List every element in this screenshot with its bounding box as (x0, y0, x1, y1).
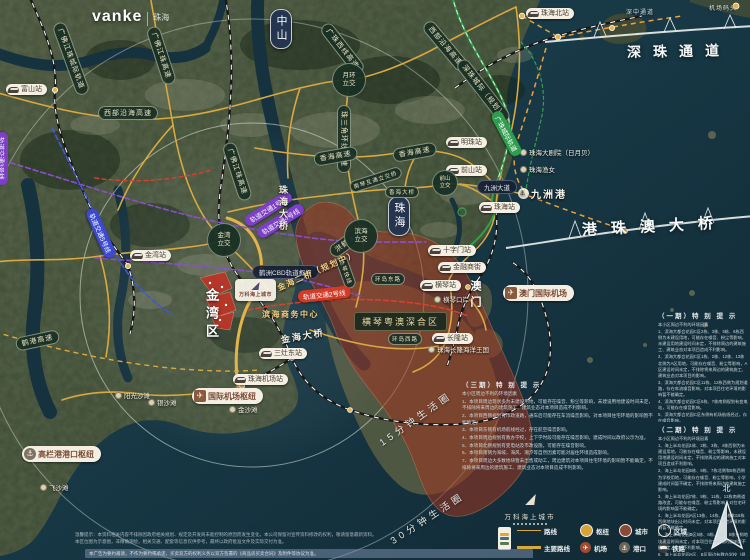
poi-yinshatan-beach: 银沙滩 (148, 397, 177, 407)
road-xianghai-expwy-2-text: 香海高速 (398, 144, 431, 159)
legend-route-label: 路线 (544, 526, 557, 536)
road-west-coastal-expwy-2-text: 西部沿海高速 (104, 108, 152, 118)
poi-jinshatan-beach: 金沙滩 (229, 404, 258, 414)
poi-binhai-business-center-text: 滨海商务中心 (262, 309, 319, 320)
notice-phase-3-line-3: 3、本项目东侧有机场航线经过，存在航空噪音影响。 (462, 427, 654, 434)
notice-phase-2-header: （二期）特 别 提 示 (658, 424, 748, 434)
brand-logo: vanke 珠海 (92, 8, 169, 26)
road-xianghai-expwy-1: 香海高速 (313, 145, 359, 166)
brand-region-label: 珠海 (147, 12, 169, 26)
vanke-wordmark: vanke (92, 8, 142, 26)
station-hengqin: 横琴站 (420, 280, 461, 291)
poi-chimelong-ocean-kingdom: 珠海长隆海洋王国 (428, 344, 489, 354)
poi-zhuhai-grand-theatre-text: 珠海大剧院（日月贝） (529, 147, 594, 157)
road-west-coastal-expwy-2: 西部沿海高速 (98, 106, 158, 120)
notice-phase-2: （二期）特 别 提 示本小区周边不利的环境因素1、海上半岛花园1栋、2栋、3栋、… (658, 424, 748, 556)
station-jinwan-text: 金湾站 (145, 251, 166, 260)
plane-icon (505, 287, 517, 299)
notice-phase-3-line-7: 7、本项目周边大多数地块暂未出售或动工，周边建筑对本项目住宅环境的影响暂不能确定… (462, 458, 654, 471)
dot-icon (229, 406, 236, 413)
bridge-zhuhai-text: 珠海大桥 (277, 185, 290, 233)
zone-hengqin-cooperation: 横琴粤澳深合区 (354, 312, 447, 331)
project-marker-legend-icon (498, 527, 511, 550)
road-gfjz-expressway-2-text: 广佛江珠高速 (225, 147, 249, 196)
airplane-icon (580, 542, 591, 553)
notice-phase-3-line-4: 4、本项目周边规划有教办学校，上下学时段可能存在噪音影响，建成时间以政府公示为准… (462, 435, 654, 442)
train-icon (447, 140, 460, 146)
notice-phase-1-line-1: 1、滨海大都会花园C区2栋、3栋、5栋、6栋西侧为未建设用地，可能存在噪音、粉尘… (658, 329, 748, 353)
station-hengqin-text: 横琴站 (435, 281, 456, 290)
station-zhuhai-text: 珠海站 (494, 203, 515, 212)
sea-title-hzmb: 港珠澳大桥 (581, 211, 727, 240)
notice-phase-3-line-2: 2、本项目西侧规划有市政道路，通车后可能存在车流噪音影响，对本项目住宅环境的影响… (462, 413, 654, 426)
poi-gaolan-port-hub-text: 高栏港港口枢纽 (38, 449, 94, 460)
poi-gaolan-port-hub: 高栏港港口枢纽 (22, 446, 101, 462)
dot-icon (428, 346, 435, 353)
legend-city-label: 城市 (635, 526, 648, 536)
label-airport-pier: 机场码头 (709, 3, 737, 12)
road-gfjz-intercity-rail-text: 广佛江珠城际轨道 (55, 27, 86, 91)
anchor-icon (24, 448, 36, 460)
poi-jinshatan-beach-text: 金沙滩 (238, 404, 258, 414)
sail-icon (251, 282, 259, 290)
interchange-jinwan: 金湾立交 (207, 223, 241, 257)
notice-phase-3-line-1: 1、本项目周边现状多为未建设用地，可能存在噪音、粉尘等影响，未建设用地建设时间未… (462, 399, 654, 412)
legend-route: 路线 (517, 526, 570, 536)
notice-phase-1-line-0: 本小区周边不利的环境因素 (658, 322, 748, 328)
station-mingzhu-text: 明珠站 (461, 138, 482, 147)
hub-circle-icon (580, 524, 593, 537)
station-jinrong-shangjie: 金融商街 (438, 262, 486, 273)
poi-jiuzhou-port: 九洲港 (518, 186, 567, 201)
notice-phase-2-line-4: 4、海上半岛花园A区13栋、14栋、15栋和16栋西侧地块出让时间未定，对本项目… (658, 513, 748, 531)
interchange-yuehuan-text: 月环立交 (342, 72, 357, 88)
road-hegang-expwy: 鹤港高速 (15, 329, 61, 352)
station-mingzhu: 明珠站 (446, 137, 487, 148)
notice-phase-2-line-3: 3、海上半岛花园7栋、8栋、11栋、12栋南侧道路改造，可能存在噪音、粉尘等影响… (658, 494, 748, 512)
notice-phase-1-line-3: 3、滨海大都会花园C区11栋、12栋西侧为规划道路，存在车流噪音影响，对本项目住… (658, 380, 748, 398)
notice-phase-1-line-5: 5、滨海大都会花园C区东侧有机场航线经过，存在噪音影响。 (658, 412, 748, 422)
station-jinwan: 金湾站 (130, 250, 171, 261)
poi-macau-intl-airport: 澳门国际机场 (503, 285, 574, 301)
station-zhuhai: 珠海站 (479, 202, 520, 213)
poi-intl-airport-hub-text: 国际机场枢纽 (208, 391, 256, 402)
rail-guangzhu-intercity-text: 广珠城际轨道 (493, 114, 520, 153)
interchange-qianshan: 前山立交 (432, 170, 458, 196)
road-jiuzhou-avenue: 九洲大道 (477, 180, 517, 194)
interchange-jinwan-text: 金湾立交 (217, 232, 232, 248)
road-xianghai-bridge: 香海大桥 (385, 186, 419, 198)
train-icon (421, 283, 434, 289)
poi-yinshatan-beach-text: 银沙滩 (157, 397, 177, 407)
metro-line-3: 轨道交通3号线 (0, 132, 8, 185)
footer-disclaimer-line1: 温馨提示：本资料相关内容不排除因政府相关规划、规定及开发商未能控制的原因而发生变… (75, 532, 461, 539)
poi-hengqin-checkpoint: 横琴口岸 (434, 294, 469, 304)
station-sanzao-east-text: 三灶东站 (274, 349, 302, 358)
notice-phase-2-line-6: 6、海上半岛花园A区、B区周边有教办学校（规划中）。 (658, 552, 748, 556)
notice-phase-3-line-6: 6、本项目南侧为海域，海风、潮汐等自然因素可能对居住环境造成影响。 (462, 450, 654, 457)
dot-icon (434, 296, 441, 303)
poi-hengqin-checkpoint-text: 横琴口岸 (443, 294, 469, 304)
station-fushan: 富山站 (6, 84, 47, 95)
station-sanzao-east: 三灶东站 (259, 348, 307, 359)
city-zhongshan-text: 中山 (273, 15, 289, 43)
city-zhuhai: 珠海 (388, 196, 410, 236)
sea-title-shenzhu-corridor-text: 深珠通道 (627, 40, 731, 62)
arc-15min-circle-text: 15分钟生活圈 (376, 388, 455, 449)
notice-phase-2-line-1: 1、海上半岛花园1栋、2栋、3栋、4栋西侧为未建设用地，可能存在噪音、粉尘等影响… (658, 443, 748, 467)
train-icon (7, 87, 20, 93)
bridge-zhuhai: 珠海大桥 (277, 185, 290, 233)
footer-strip: 本广告为要约邀请，不作为要约或承诺，买卖双方的权利义务以双方签署的《商品房买卖合… (85, 549, 533, 558)
project-marker-vanke-sea-city: 万科海上城市 (235, 279, 276, 301)
station-shizimen-text: 十字门站 (443, 246, 471, 255)
station-zhuhai-airport: 珠海机场站 (233, 374, 288, 385)
poi-yangguang-beach-text: 阳光沙滩 (124, 390, 150, 400)
label-airport-pier-text: 机场码头 (709, 3, 737, 12)
poi-jiuzhou-port-text: 九洲港 (531, 186, 567, 201)
notice-phase-2-line-0: 本小区周边不利的环境因素 (658, 436, 748, 442)
footer-disclaimer: 温馨提示：本资料相关内容不排除因政府相关规划、规定及开发商未能控制的原因而发生变… (75, 532, 461, 546)
poi-feishatan-beach: 飞沙滩 (40, 482, 69, 492)
notice-phase-3-line-0: 本小区周边不利的环境因素 (462, 391, 654, 398)
dot-icon (520, 166, 527, 173)
road-huandao-west: 环岛西路 (388, 333, 422, 345)
notice-phase-1: （一期）特 别 提 示本小区周边不利的环境因素1、滨海大都会花园C区2栋、3栋、… (658, 310, 748, 422)
sea-title-shenzhu-corridor: 深珠通道 (627, 40, 731, 62)
interchange-binhai-text: 滨海立交 (354, 228, 369, 244)
notice-phase-1-line-2: 2、滨海大都会花园C区1栋、2栋、12栋、13栋北侧为A区用地，可能存在噪音、粉… (658, 354, 748, 378)
train-icon (131, 253, 144, 259)
legend-main-route-label: 主要路线 (544, 543, 570, 553)
route-line-icon (517, 530, 541, 532)
dot-icon (115, 392, 122, 399)
train-icon (480, 205, 493, 211)
zone-hengqin-cooperation-text: 横琴粤澳深合区 (362, 315, 439, 328)
poi-zhuhai-grand-theatre: 珠海大剧院（日月贝） (520, 147, 594, 157)
road-gfjz-expressway: 广佛江珠高速 (145, 25, 177, 86)
poi-zhuhai-fisher-girl: 珠海渔女 (520, 164, 555, 174)
sea-title-hzmb-text: 港珠澳大桥 (581, 211, 727, 240)
notice-phase-3-line-5: 5、本项目北侧规划有变电站及市政设施，可能存在噪音影响。 (462, 443, 654, 450)
anchor-c-icon (518, 188, 529, 199)
station-zhuhai-airport-text: 珠海机场站 (248, 375, 283, 384)
footer-disclaimer-line2: 本区位图为示意图，非精确测绘，相关交通、配套等信息仅供参考，最终以政府批准文件及… (75, 539, 461, 546)
legend-hub-label: 枢纽 (596, 526, 609, 536)
legend-hub: 枢纽 (580, 524, 609, 537)
legend-city: 城市 (619, 524, 648, 537)
anchor-icon (619, 542, 630, 553)
district-jinwan: 金湾区 (202, 288, 221, 342)
poi-feishatan-beach-text: 飞沙滩 (49, 482, 69, 492)
train-icon (439, 265, 452, 271)
interchange-binhai: 滨海立交 (344, 219, 378, 253)
poi-zhuhai-fisher-girl-text: 珠海渔女 (529, 164, 555, 174)
poi-chimelong-ocean-kingdom-text: 珠海长隆海洋王国 (437, 344, 489, 354)
city-zhongshan: 中山 (270, 9, 292, 49)
poi-binhai-business-center: 滨海商务中心 (262, 309, 319, 320)
interchange-yuehuan: 月环立交 (332, 63, 366, 97)
road-gfjz-expressway-2: 广佛江珠高速 (221, 141, 253, 202)
notice-phase-3-header: （三期）特 别 提 示 (462, 379, 654, 389)
station-changlong: 长隆站 (432, 333, 473, 344)
station-changlong-text: 长隆站 (447, 334, 468, 343)
road-prd-ring-expwy: 珠三角环线高速 (337, 105, 351, 173)
arc-15min-circle: 15分钟生活圈 (376, 388, 455, 449)
legend-airport-label: 机场 (594, 543, 607, 553)
train-icon (433, 336, 446, 342)
road-gfjz-expressway-text: 广佛江珠高速 (149, 31, 173, 80)
label-shenzhong-corridor-text: 深中通道 (626, 7, 654, 16)
station-zhuhai-north: 珠海北站 (526, 8, 574, 19)
project-logo-name: 万科海上城市 (486, 511, 574, 521)
notice-phase-1-line-4: 4、滨海大都会花园C区6栋、7栋南侧规划有变电站，可能存在噪音影响。 (658, 399, 748, 411)
station-fushan-text: 富山站 (21, 85, 42, 94)
train-icon (234, 377, 247, 383)
map-poster: 中山珠海澳门金湾区深珠通道港珠澳大桥深中通道机场码头富山站金湾站明珠站前山站珠海… (0, 0, 750, 560)
city-macau: 澳门 (467, 280, 483, 312)
district-jinwan-text: 金湾区 (202, 288, 221, 342)
notice-phase-2-line-5: 5、海上半岛花园B区5栋、6栋、7栋、8栋东侧地块建设时间未定，对本项目住宅环境… (658, 532, 748, 550)
bridge-jinhai: 金海大桥 (280, 325, 326, 345)
station-shizimen: 十字门站 (428, 245, 476, 256)
legend-port: 港口 (619, 542, 648, 553)
station-zhuhai-north-text: 珠海北站 (541, 9, 569, 18)
label-shenzhong-corridor: 深中通道 (626, 7, 654, 16)
city-circle-icon (619, 524, 632, 537)
road-xianghai-expwy-2: 香海高速 (392, 141, 438, 162)
interchange-qianshan-text: 前山立交 (439, 176, 451, 189)
road-jiuzhou-avenue-text: 九洲大道 (484, 182, 510, 192)
road-huandao-east-text: 环岛东路 (375, 275, 401, 283)
train-icon (527, 11, 540, 17)
train-icon (260, 351, 273, 357)
notice-phase-2-line-2: 2、海上半岛花园5栋、6栋、7栋北侧和8栋西侧为学校用地，可能存在噪音、粉尘等影… (658, 468, 748, 492)
station-jinrong-shangjie-text: 金融商街 (453, 263, 481, 272)
poi-macau-intl-airport-text: 澳门国际机场 (519, 288, 567, 299)
metro-line-2: 轨道交通2号线 (297, 286, 351, 303)
road-hegang-expwy-text: 鹤港高速 (21, 332, 54, 348)
project-marker-vanke-sea-city-text: 万科海上城市 (239, 291, 272, 298)
legend-airport: 机场 (580, 542, 609, 553)
notice-phase-1-header: （一期）特 别 提 示 (658, 310, 748, 320)
city-zhuhai-text: 珠海 (391, 202, 407, 230)
notice-phase-3: （三期）特 别 提 示本小区周边不利的环境因素1、本项目周边现状多为未建设用地，… (462, 379, 654, 497)
metro-line-2-text: 轨道交通2号线 (302, 287, 345, 301)
road-huandao-west-text: 环岛西路 (392, 335, 418, 343)
city-macau-text: 澳门 (467, 280, 483, 312)
metro-line-5: 轨道交通5号线 (85, 207, 117, 260)
poi-yangguang-beach: 阳光沙滩 (115, 390, 150, 400)
road-huandao-east: 环岛东路 (371, 273, 405, 285)
dot-icon (40, 484, 47, 491)
road-gfjz-intercity-rail: 广佛江珠城际轨道 (51, 21, 90, 97)
road-xianghai-bridge-text: 香海大桥 (389, 188, 415, 196)
bridge-jinhai-text: 金海大桥 (280, 325, 326, 345)
legend-port-label: 港口 (633, 543, 646, 553)
train-icon (429, 248, 442, 254)
metro-line-3-text: 轨道交通3号线 (0, 137, 7, 180)
poi-intl-airport-hub: 国际机场枢纽 (192, 388, 263, 404)
plane-icon (194, 390, 206, 402)
metro-line-5-text: 轨道交通5号线 (87, 212, 113, 255)
station-qianshan-text: 前山站 (461, 166, 482, 175)
